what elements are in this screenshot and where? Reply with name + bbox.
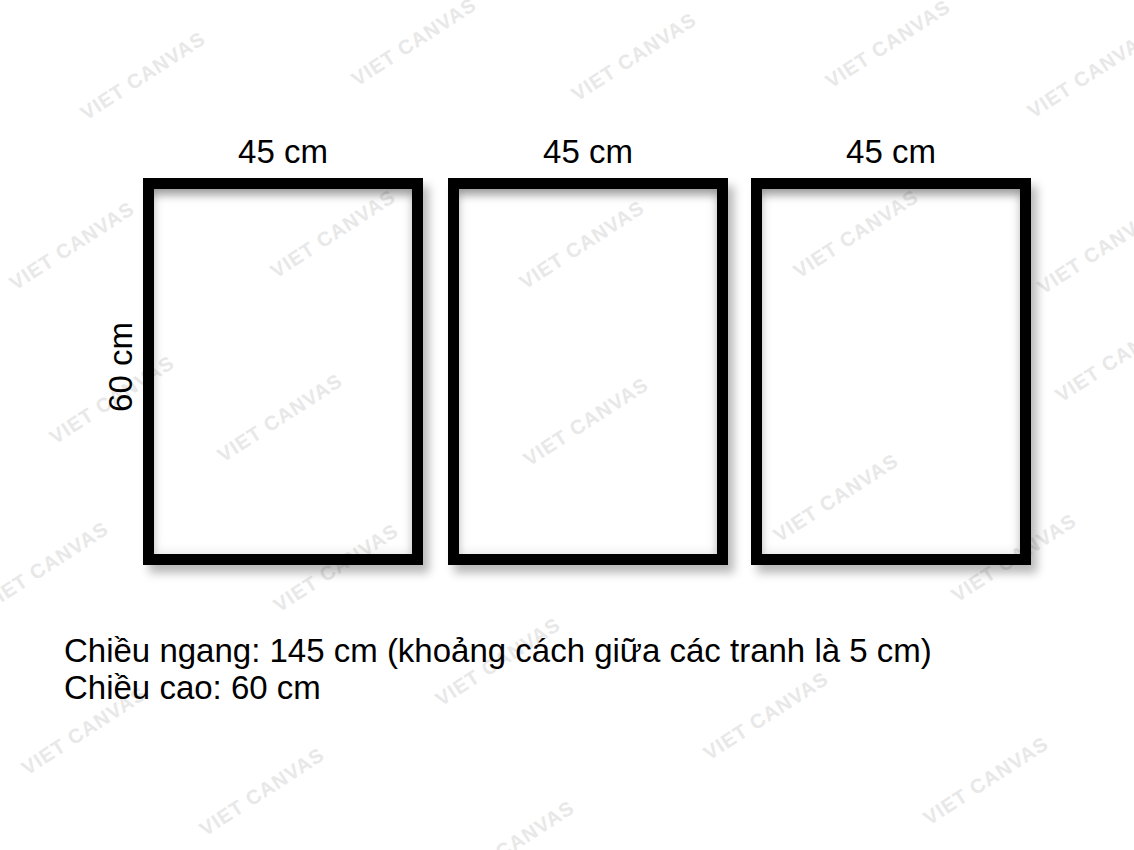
- watermark-text: VIET CANVAS: [1051, 309, 1134, 407]
- frame-2: [448, 178, 728, 565]
- watermark-text: VIET CANVAS: [1033, 201, 1134, 299]
- watermark-text: VIET CANVAS: [567, 8, 700, 106]
- watermark-text: VIET CANVAS: [0, 517, 113, 615]
- watermark-text: VIET CANVAS: [347, 0, 480, 91]
- watermark-text: VIET CANVAS: [821, 0, 954, 93]
- watermark-text: VIET CANVAS: [1023, 25, 1134, 123]
- watermark-text: VIET CANVAS: [195, 743, 328, 841]
- frame-height-label: 60 cm: [102, 322, 139, 412]
- caption-horizontal-dimension: Chiều ngang: 145 cm (khoảng cách giữa cá…: [64, 632, 932, 669]
- watermark-text: VIET CANVAS: [919, 732, 1052, 830]
- frame-1-width-label: 45 cm: [143, 133, 423, 170]
- dimensions-caption: Chiều ngang: 145 cm (khoảng cách giữa cá…: [64, 632, 932, 706]
- watermark-text: VIET CANVAS: [445, 796, 578, 850]
- frame-3-width-label: 45 cm: [751, 133, 1031, 170]
- watermark-text: VIET CANVAS: [76, 27, 209, 125]
- watermark-text: VIET CANVAS: [5, 197, 138, 295]
- caption-vertical-dimension: Chiều cao: 60 cm: [64, 669, 932, 706]
- frame-2-width-label: 45 cm: [448, 133, 728, 170]
- frame-1: [143, 178, 423, 565]
- frame-3: [751, 178, 1031, 565]
